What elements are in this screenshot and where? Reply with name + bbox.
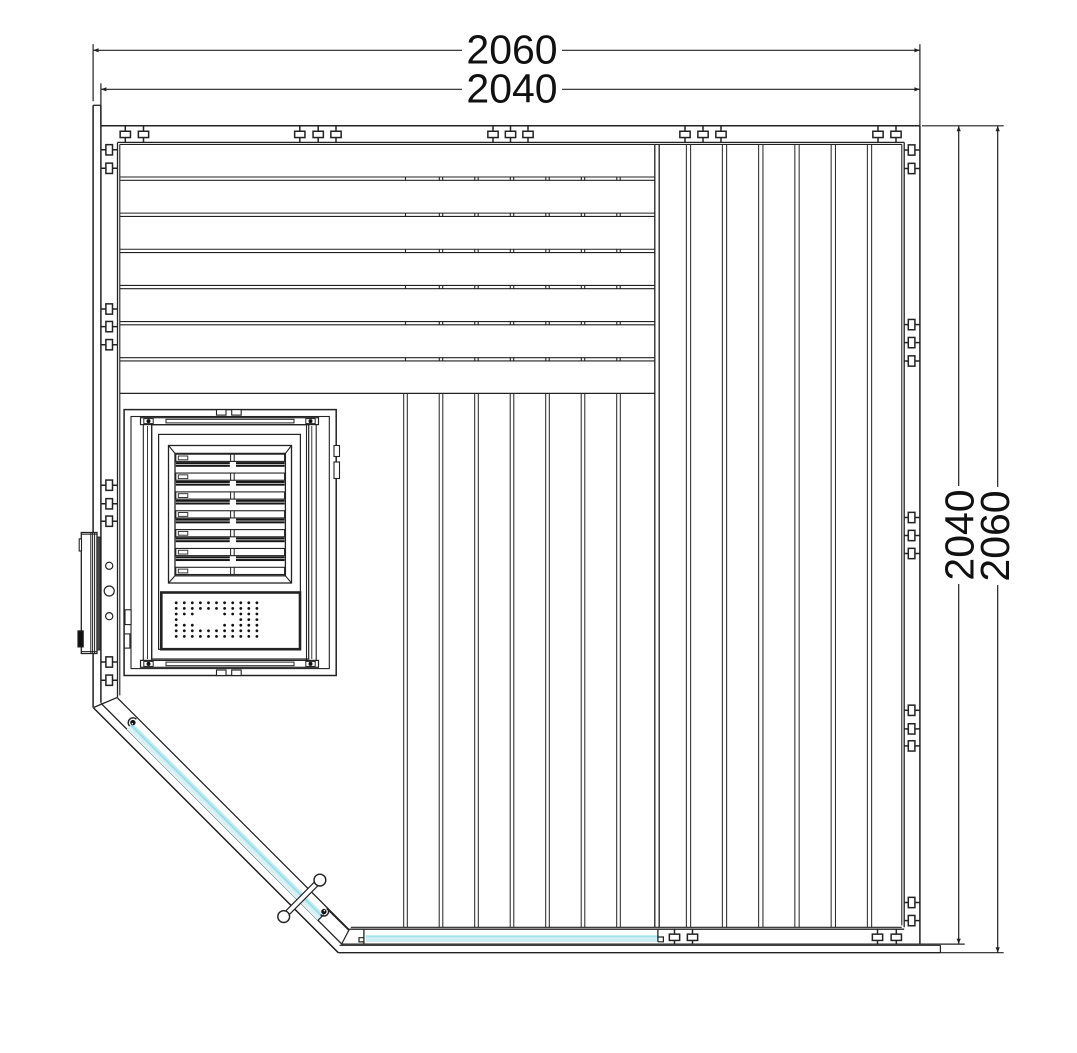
svg-text:2060: 2060	[972, 490, 1018, 581]
svg-text:2040: 2040	[466, 66, 557, 112]
